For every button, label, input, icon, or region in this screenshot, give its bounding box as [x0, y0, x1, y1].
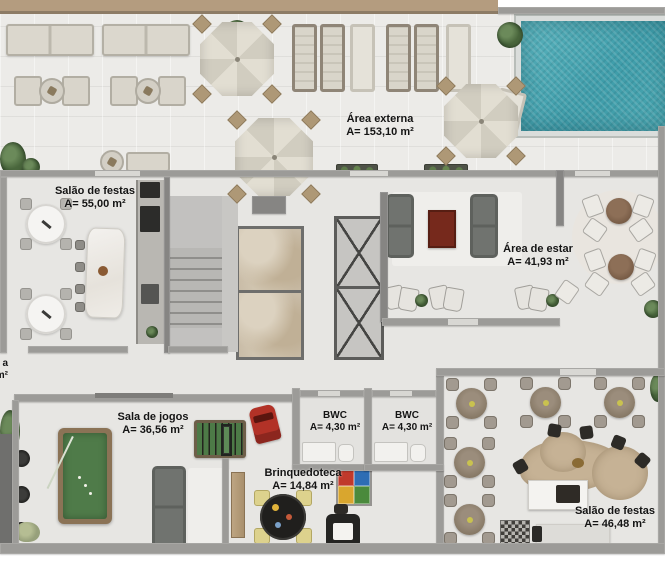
umbrella-pole: [272, 155, 277, 160]
label-sala-de-jogos: Sala de jogos A= 36,56 m²: [83, 411, 223, 437]
coffee-table: [428, 210, 456, 248]
outdoor-armchair: [110, 76, 138, 106]
room-area: A= 4,30 m²: [372, 422, 442, 434]
wall: [12, 400, 19, 546]
round-table: [26, 294, 66, 334]
outdoor-coffee-table: [135, 78, 161, 104]
room-name: Área de estar: [468, 243, 608, 256]
potted-plant: [146, 326, 158, 338]
elevator-shaft-marble: [236, 226, 304, 294]
stool: [75, 284, 85, 294]
room-name: Sala de jogos: [83, 411, 223, 424]
round-table: [454, 447, 485, 478]
label-bwc-2: BWC A= 4,30 m²: [372, 410, 442, 434]
billiard-felt: [63, 433, 107, 519]
elevator-shaft: [334, 216, 384, 290]
stair-landing: [170, 196, 222, 248]
outdoor-armchair: [62, 76, 90, 106]
sun-lounger: [350, 24, 375, 92]
decor-item: [532, 526, 542, 542]
kids-play-table: [260, 494, 306, 540]
planter-band-top: [0, 0, 498, 14]
door-opening: [560, 369, 596, 375]
edge-label: a m²: [0, 358, 8, 382]
outdoor-bench: [126, 152, 170, 172]
chair: [60, 288, 72, 300]
staircase: [170, 248, 222, 328]
wall: [436, 376, 444, 546]
outdoor-sofa: [102, 24, 190, 56]
wall: [0, 543, 665, 554]
label-bwc-1: BWC A= 4,30 m²: [300, 410, 370, 434]
chair: [20, 328, 32, 340]
wall: [498, 7, 665, 14]
chair: [60, 328, 72, 340]
wall: [28, 346, 128, 353]
centerpiece: [572, 458, 584, 468]
glass-door: [95, 393, 173, 398]
parasol-table: [235, 118, 313, 196]
elevator-shaft: [334, 286, 384, 360]
sink: [141, 284, 159, 304]
room-area: A= 36,56 m²: [83, 424, 223, 437]
floor-plan: Área externa A= 153,10 m² Salão de festa…: [0, 0, 665, 572]
door-opening: [575, 171, 610, 176]
dining-table-group: [20, 288, 72, 340]
bistro-table: [606, 198, 632, 224]
stool: [75, 302, 85, 312]
umbrella-pole: [479, 119, 484, 124]
swimming-pool: [516, 16, 665, 136]
toilet: [338, 444, 354, 462]
door-opening: [448, 319, 478, 325]
label-area-de-estar: Área de estar A= 41,93 m²: [468, 243, 608, 269]
parasol-table: [444, 84, 518, 158]
door-opening: [350, 171, 388, 176]
room-area: A= 14,84 m²: [233, 480, 373, 493]
chair: [20, 288, 32, 300]
kids-chair: [334, 504, 348, 514]
outdoor-coffee-table: [39, 78, 65, 104]
room-area: A= 41,93 m²: [468, 256, 608, 269]
outdoor-sofa: [6, 24, 94, 56]
serving-tray: [556, 485, 580, 503]
armchair: [442, 287, 465, 313]
round-table: [604, 387, 635, 418]
sofa: [152, 466, 186, 548]
room-area: A= 153,10 m²: [310, 126, 450, 139]
sun-lounger: [414, 24, 439, 92]
room-name: Área externa: [310, 113, 450, 126]
door-opening: [390, 391, 412, 396]
room-name: BWC: [372, 410, 442, 422]
wall: [252, 196, 286, 214]
outdoor-armchair: [158, 76, 186, 106]
sink-counter: [302, 442, 336, 462]
door-opening: [95, 171, 140, 176]
wall: [556, 170, 564, 226]
room-name: a: [0, 358, 8, 370]
sun-lounger: [386, 24, 411, 92]
chair: [20, 238, 32, 250]
room-name: Salão de festas: [545, 505, 665, 518]
chair: [547, 423, 562, 438]
potted-plant: [415, 294, 428, 307]
room-area: A= 55,00 m²: [25, 198, 165, 211]
label-area-externa: Área externa A= 153,10 m²: [310, 113, 450, 139]
sun-lounger: [320, 24, 345, 92]
round-table: [530, 387, 561, 418]
room-area: m²: [0, 370, 8, 382]
party-table-group: [444, 437, 495, 488]
bistro-table: [608, 254, 634, 280]
chair: [579, 425, 594, 440]
room-area: A= 46,48 m²: [545, 518, 665, 531]
toilet: [410, 444, 426, 462]
wall: [364, 464, 444, 471]
party-table-group: [444, 494, 495, 545]
chair: [60, 238, 72, 250]
label-salao-de-festas-2: Salão de festas A= 46,48 m²: [545, 505, 665, 531]
parasol-table: [200, 22, 274, 96]
sink-counter: [374, 442, 408, 462]
stool: [75, 262, 85, 272]
stool: [75, 240, 85, 250]
wall: [292, 388, 300, 468]
umbrella-pole: [235, 57, 240, 62]
elevator-shaft-marble: [236, 290, 304, 360]
room-area: A= 4,30 m²: [300, 422, 370, 434]
bush: [16, 522, 40, 542]
wall: [168, 346, 228, 353]
wall: [222, 458, 229, 546]
party-table-group: [520, 377, 571, 428]
label-salao-de-festas-1: Salão de festas A= 55,00 m²: [25, 185, 165, 211]
sofa: [386, 194, 414, 258]
outdoor-armchair: [14, 76, 42, 106]
round-table: [454, 504, 485, 535]
sun-lounger: [292, 24, 317, 92]
party-table-group: [594, 377, 645, 428]
core-lobby: [222, 196, 238, 352]
room-name: Brinquedoteca: [233, 467, 373, 480]
wall: [380, 192, 388, 322]
room-name: Salão de festas: [25, 185, 165, 198]
decor-item: [98, 266, 108, 276]
potted-plant: [497, 22, 523, 48]
wall: [436, 368, 665, 376]
room-name: BWC: [300, 410, 370, 422]
party-table-group: [446, 378, 497, 429]
wall: [0, 177, 7, 353]
label-brinquedoteca: Brinquedoteca A= 14,84 m²: [233, 467, 373, 493]
door-opening: [318, 391, 340, 396]
bottom-margin: [0, 554, 665, 572]
billiard-table: [58, 428, 112, 524]
round-table: [456, 388, 487, 419]
wall: [658, 126, 665, 546]
